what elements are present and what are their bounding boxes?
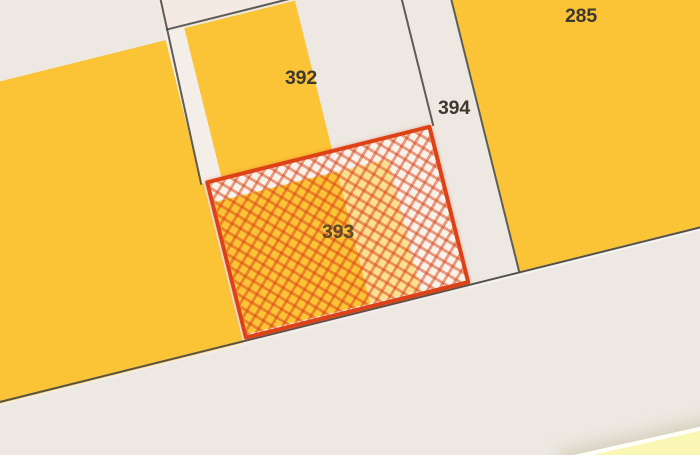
parcel-label-394: 394 [426, 96, 482, 120]
parcel-label-393: 393 [310, 220, 366, 244]
parcel-label-392: 392 [273, 66, 329, 90]
parcel-label-285: 285 [553, 4, 609, 28]
boundary-line-392-394 [370, 0, 434, 126]
map-canvas[interactable]: 392 393 394 285 [0, 0, 700, 455]
road-band [556, 407, 700, 455]
